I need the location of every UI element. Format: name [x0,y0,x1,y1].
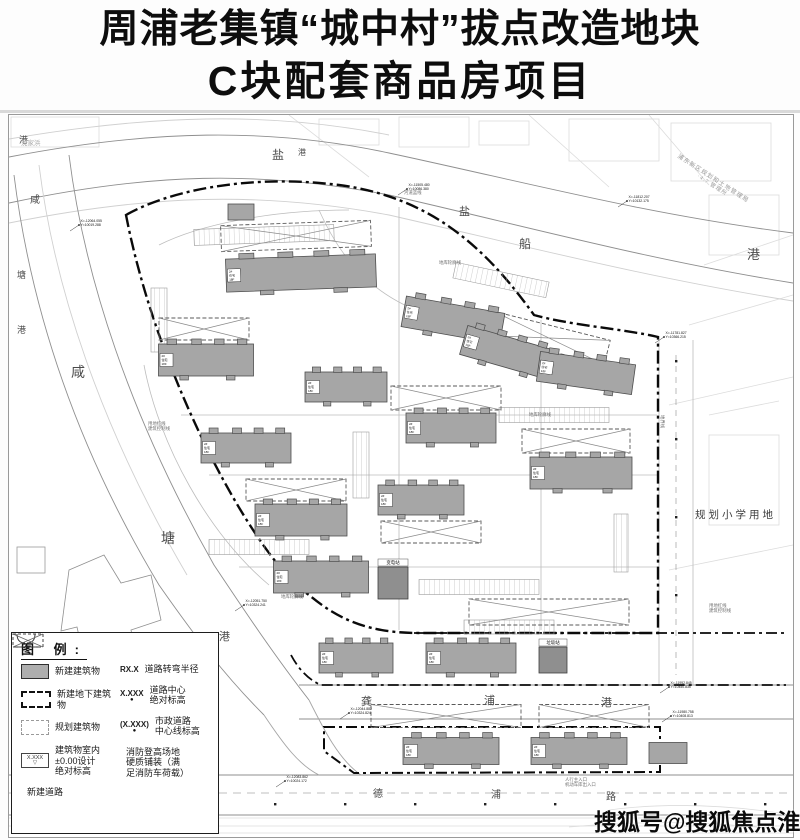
building-label-text: 18F [162,362,167,366]
legend-item: 新建建筑物 [21,664,116,679]
building-wing [380,638,387,644]
building-wing [215,339,225,345]
building-wing [553,489,562,494]
building-wing [446,673,454,678]
building-block: 2#住宅18F [406,408,496,447]
building-block: 2#住宅18F [530,452,632,493]
fire-pad-cross [371,705,521,728]
road-dot [414,803,416,805]
fire-pad-cross [381,521,481,543]
building-wing [287,499,296,505]
building-wing [590,452,600,458]
title-line-2: C块配套商品房项目 [0,56,800,106]
building-wing [323,402,330,407]
parking-row [353,432,369,498]
building-wing [192,339,202,345]
building-wing [458,638,467,644]
building-wing [352,556,362,562]
river-name-char: 塘 [161,531,175,547]
building-wing [372,673,379,678]
coordinate-label: X=-12064.055Y=10019.288 [70,219,102,231]
building-wing [615,452,625,458]
building-body [649,743,687,764]
fire-pad-cross [539,705,649,728]
coordinate-label: X=-12044.882Y=10324.824 [340,707,372,719]
building-block: 2#住宅18F [319,638,393,677]
road-name-char: 浦 [491,788,501,801]
building-label-text: 18F [308,389,313,393]
legend-underground-swatch [21,691,51,708]
fire-access-pad [522,429,630,453]
building-wing [265,463,273,468]
legend-item-label: 市政道路 中心线标高 [155,716,200,737]
site-plan-map: 2#住宅18F2#住宅18F2#住宅18F2#住宅18F2#住宅18F2#住宅1… [8,114,794,838]
fire-access-pad [371,705,521,728]
facility-label: 变电站 [386,559,400,566]
building-wing [597,354,607,361]
parking-stalls [499,408,609,423]
building-block: 2#住宅18F [531,733,627,769]
river-name-char: 浦 [484,694,495,707]
road-dot [344,803,346,805]
road-dot [274,803,276,805]
river-name-char: 港 [298,147,306,157]
parking-row [419,580,539,595]
coord-x: X=-11812.207 [629,195,650,199]
fire-pad-cross [159,318,249,340]
annotation-note: 河道蓝线 [404,189,422,196]
building-wing [278,252,293,258]
river-name-char: 港 [747,247,760,262]
road-name-char: 路 [606,790,616,803]
legend-item-label: 新建地下建筑物 [57,689,116,710]
parking-row [151,288,167,352]
building-wing [481,408,490,414]
building-wing [437,733,447,739]
legend-right-column: RX.X道路转弯半径X.XXX●道路中心 绝对标高(X.XXX)●市政道路 中心… [120,664,211,807]
coord-y: Y=10324.824 [351,711,371,715]
river-name-char: 咸 [71,365,85,381]
building-wing [209,428,218,434]
building-label-text: 18F [533,475,538,479]
building-wing [565,733,575,739]
legend-road-elevation-symbol: X.XXX● [120,689,144,702]
annotation-note: 地界线 [659,415,666,429]
building-wing [611,733,621,739]
coord-x: X=-12064.055 [81,219,103,223]
building-wing [386,480,395,486]
building-wing [574,351,584,358]
facility-box: 变电站 [378,559,408,599]
legend-item: 消防登高场地 硬质铺装（满 足消防车荷载） [120,747,211,779]
annotation-note: 人行主入口机动车库出入口 [565,776,596,788]
annotation-note: 用地红线建筑控制线 [709,602,732,614]
facility-box: 垃圾站 [539,639,567,673]
building-label-text: 18F [409,430,414,434]
legend-item-label: 新建道路 [27,787,63,798]
leader-line [340,713,349,719]
building-wing [604,390,613,396]
building-wing [566,452,576,458]
parking-row [209,540,309,555]
building-wing [549,348,559,355]
building-label-text: 18F [229,278,234,282]
fire-access-pad [159,318,249,340]
building-wing [472,764,481,769]
parking-stalls [151,288,167,352]
legend-item-label: 道路转弯半径 [145,664,199,675]
river-name-char: 港 [219,630,230,643]
building-wing [373,367,381,373]
parking-stalls [194,225,334,246]
coordinate-label: X=-11952.845Y=10450.835 [660,681,692,693]
legend-item: 规划建筑物 [21,720,116,735]
fire-pad-cross [246,479,346,501]
coord-y: Y=10450.835 [671,685,691,689]
building-wing [260,290,274,295]
building-body [530,457,632,489]
building-wing [540,733,550,739]
leader-line [276,781,285,787]
building-body [228,204,254,220]
building-block: 2#住宅18F [274,556,369,597]
fire-access-pad [381,521,481,543]
annotation-note: 地库轮廓线 [439,259,462,266]
building-wing [439,515,447,520]
leader-line [660,687,669,693]
building-wing [180,376,189,381]
legend-planned-swatch [21,720,49,735]
facility-body [378,567,408,599]
building-wing [326,638,333,644]
building-wing [588,733,598,739]
coord-y: Y=10408.813 [673,714,693,718]
building-wing [321,536,329,541]
building-wing [603,489,612,494]
road-dot [675,438,677,440]
building-wing [426,443,434,448]
building-wing [309,499,318,505]
legend-new-building-swatch [21,664,49,679]
building-block: 2#住宅18F [225,249,376,296]
building-wing [459,408,468,414]
building-wing [483,733,493,739]
fire-pad-cross [522,429,630,453]
legend-item-label: 消防登高场地 硬质铺装（满 足消防车荷载） [126,747,189,779]
building-wing [226,376,235,381]
coord-y: Y=10366.215 [666,335,686,339]
coord-x: X=-11505.480 [409,183,430,187]
building-label-text: 18F [406,753,411,757]
building-wing [353,367,361,373]
building-block [649,743,687,764]
building-wing [408,480,417,486]
building-label-text: 18F [322,660,327,664]
building-wing [501,638,510,644]
parking-row [194,225,334,246]
building-wing [282,556,292,562]
road-dot [554,803,556,805]
river-name-char: 咸 [30,194,40,206]
building-wing [539,452,549,458]
building-wing [600,764,609,769]
fire-access-pad [391,386,501,410]
area-label: 浦东新区规划和土地管理局 [676,152,751,204]
road-dot [484,803,486,805]
parking-row [499,408,609,423]
legend-item: X.XXX▽建筑物室内 ±0.00设计 绝对标高 [21,745,116,777]
map-top-divider [0,110,800,113]
facility-body [539,647,567,673]
building-label-text: 18F [429,660,434,664]
fire-pad-cross [391,386,501,410]
building-wing [233,428,242,434]
coordinate-label: X=-11812.207Y=10132.175 [618,195,650,207]
area-label: 沈家浜 [21,138,41,147]
legend-item: 新建道路 [21,787,116,798]
building-block: 2#住宅18F [536,347,636,399]
building-label-text: 18F [541,369,547,374]
building-wing [221,463,229,468]
building-wing [363,638,370,644]
building-wing [334,367,342,373]
building-wing [557,384,566,390]
legend-indoor-elevation-symbol: X.XXX▽ [21,753,49,768]
fire-access-pad [246,479,346,501]
building-block: 2#住宅18F [378,480,464,519]
building-wing [412,733,422,739]
building-block: 2#住宅18F [305,367,387,406]
title-line-1: 周浦老集镇“城中村”拔点改造地块 [0,4,800,56]
road-dot [675,594,677,596]
coord-x: X=-12051.750 [246,599,268,603]
building-wing [263,499,272,505]
road-name-char: 德 [373,787,383,800]
building-wing [345,638,352,644]
parking-stalls [353,432,369,498]
building-wing [331,499,340,505]
coord-x: X=-11952.845 [671,681,692,685]
building-wing [314,251,329,257]
annotation-note: 地库轮廓线 [529,411,552,418]
legend-item-label: 新建建筑物 [55,666,100,677]
river-name-char: 船 [519,237,531,251]
coord-y: Y=10019.288 [81,223,101,227]
coord-x: X=-11980.758 [673,710,694,714]
building-wing [307,556,317,562]
legend-turn-radius-symbol: RX.X [120,665,139,674]
drawing-title: 周浦老集镇“城中村”拔点改造地块 C块配套商品房项目 [0,4,800,106]
legend-item: RX.X道路转弯半径 [120,664,211,675]
building-wing [276,536,284,541]
building-label-text: 18F [204,450,209,454]
leader-line [70,225,79,231]
coord-x: X=-11781.827 [666,331,687,335]
legend-item-label: 规划建筑物 [55,722,100,733]
legend-item: X.XXX●道路中心 绝对标高 [120,685,211,706]
building-wing [619,358,629,365]
river-name-char: 盐 [272,148,284,162]
building-wing [553,764,562,769]
parking-stalls [614,514,628,572]
building-wing [350,249,365,255]
legend-box: 图 例: 新建建筑物新建地下建筑物规划建筑物X.XXX▽建筑物室内 ±0.00设… [11,632,219,834]
building-block [228,204,254,220]
river-name-char: 港 [601,696,612,709]
river-name-char: 港 [17,324,26,335]
fire-access-pad [539,705,649,728]
building-label-text: 18F [381,502,386,506]
building-wing [330,556,340,562]
parking-stalls [209,540,309,555]
road-dot [675,516,677,518]
legend-item: 新建地下建筑物 [21,689,116,710]
building-wing [490,673,498,678]
leader-line [655,337,664,343]
legend-item: (X.XXX)●市政道路 中心线标高 [120,716,211,737]
facility-label: 垃圾站 [546,639,560,646]
building-wing [364,402,371,407]
building-wing [312,367,320,373]
coordinate-label: X=-12083.862Y=10024.172 [276,775,308,787]
building-wing [254,428,263,434]
building-wing [334,287,348,292]
watermark-text: 搜狐号@搜狐焦点淮南站 [594,803,800,837]
building-wing [239,253,254,259]
area-label: 规划小学用地 [695,508,776,521]
building-wing [341,593,350,598]
coord-y: Y=10324.241 [246,603,266,607]
building-wing [276,428,285,434]
building-blocks: 2#住宅18F2#住宅18F2#住宅18F2#住宅18F2#住宅18F2#住宅1… [159,204,688,769]
building-wing [425,764,434,769]
building-wing [449,480,458,486]
annotation-note: 地库轮廓线 [281,593,304,600]
coord-y: Y=10132.175 [629,199,649,203]
building-block: 2#住宅18F [403,733,499,769]
building-wing [414,408,423,414]
building-wing [460,733,470,739]
building-wing [397,515,405,520]
coord-x: X=-12083.862 [287,775,309,779]
building-wing [336,673,343,678]
parking-stalls [464,620,554,634]
parking-row [614,514,628,572]
building-body [225,254,376,292]
building-block: 2#住宅18F [255,499,347,540]
building-wing [438,408,447,414]
building-wing [434,638,443,644]
scanned-site-plan-page: { "title": { "line1": "周浦老集镇“城中村”拔点改造地块"… [0,0,800,840]
river-name-char: 盐 [459,205,470,218]
building-wing [167,339,177,345]
legend-municipal-elevation-symbol: (X.XXX)● [120,720,149,733]
building-wing [237,339,247,345]
building-label-text: 18F [534,753,539,757]
annotation-note: 用地红线建筑控制线 [148,420,171,432]
coordinate-label: X=-11980.758Y=10408.813 [662,710,694,722]
building-label-text: 18F [258,522,263,526]
building-wing [470,443,478,448]
coordinate-label: X=-11781.827Y=10366.215 [655,331,687,343]
parking-row [464,620,554,634]
building-wing [479,638,488,644]
building-block: 2#住宅18F [426,638,516,677]
building-wing [429,480,438,486]
parking-row [453,262,549,297]
building-block: 2#住宅18F [201,428,291,467]
coord-y: Y=10024.172 [287,779,307,783]
legend-left-column: 新建建筑物新建地下建筑物规划建筑物X.XXX▽建筑物室内 ±0.00设计 绝对标… [21,664,116,807]
building-label-text: 18F [277,579,282,583]
road-dot [675,360,677,362]
building-block: 2#住宅18F [159,339,254,380]
parking-stalls [453,262,549,297]
coord-x: X=-12044.882 [351,707,373,711]
river-name-char: 塘 [17,269,26,280]
coordinate-label: X=-12051.750Y=10324.241 [235,599,267,611]
parking-stalls [419,580,539,595]
legend-item-label: 道路中心 绝对标高 [150,685,186,706]
legend-item-label: 建筑物室内 ±0.00设计 绝对标高 [55,745,100,777]
